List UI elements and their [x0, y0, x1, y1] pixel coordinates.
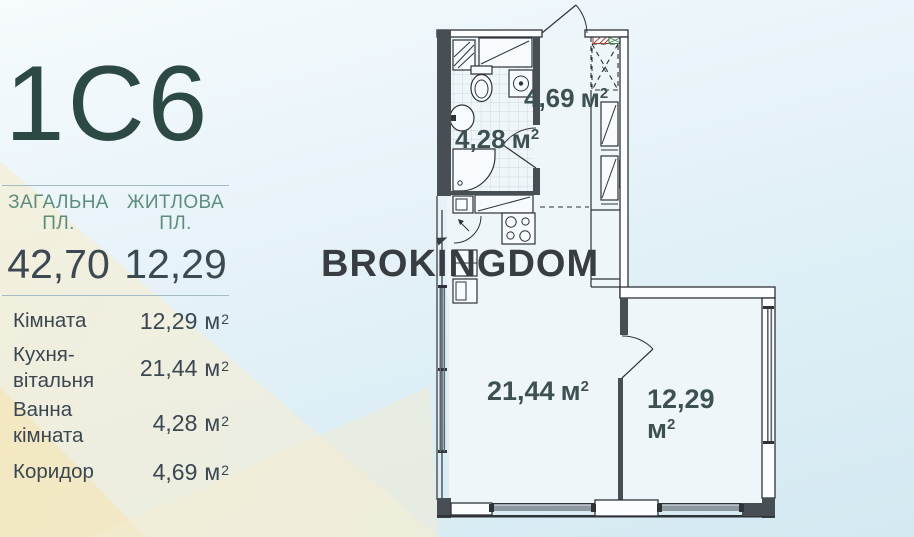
room-area-value: 4,28м2	[153, 410, 229, 437]
living-area-value: 12,29	[117, 241, 234, 288]
kitchen-cabinet-icon	[453, 196, 473, 213]
toilet-icon	[471, 66, 492, 102]
entry-marker-red-icon	[593, 37, 609, 44]
divider-top	[2, 185, 229, 186]
apartment-code-title: 1С6	[5, 50, 210, 157]
info-panel: 1С6 ЗАГАЛЬНА ПЛ. 42,70 ЖИТЛОВА ПЛ. 12,29…	[0, 0, 245, 537]
room-area-label-line1: 12,29	[647, 384, 715, 414]
stove-icon	[502, 213, 535, 244]
living-area-block: ЖИТЛОВА ПЛ. 12,29	[117, 192, 234, 288]
kitchen-counter-icon	[475, 195, 533, 213]
living-area-label: ЖИТЛОВА ПЛ.	[117, 192, 234, 234]
room-area-value: 21,44м2	[140, 355, 229, 382]
bathroom-area-label: 4,28м2	[455, 124, 539, 154]
closet-icon	[601, 102, 618, 150]
total-area-label: ЗАГАЛЬНА ПЛ.	[0, 192, 117, 234]
page: { "unit": {"label": "м", "sup": "2"}, "p…	[0, 0, 914, 537]
room-row-bathroom: Ваннакімната 4,28м2	[13, 395, 229, 451]
room-row-kimnata: Кімната 12,29м2	[13, 301, 229, 341]
room-row-corridor: Коридор 4,69м2	[13, 451, 229, 493]
total-area-block: ЗАГАЛЬНА ПЛ. 42,70	[0, 192, 117, 288]
divider-bottom	[2, 295, 229, 296]
room-list: Кімната 12,29м2 Кухня-вітальня 21,44м2 В…	[13, 301, 229, 493]
room-area-value: 12,29м2	[140, 308, 229, 335]
total-area-value: 42,70	[0, 241, 117, 288]
corridor-area-label: 4,69м2	[524, 83, 608, 113]
area-summary: ЗАГАЛЬНА ПЛ. 42,70 ЖИТЛОВА ПЛ. 12,29	[0, 192, 234, 288]
shelf-icon	[479, 38, 532, 67]
room-row-kitchen-living: Кухня-вітальня 21,44м2	[13, 341, 229, 395]
brand-watermark: BROKINGDOM	[321, 243, 599, 286]
closet-icon	[601, 156, 618, 204]
entry-marker-green-icon	[609, 37, 621, 44]
kitchen-living-area-label: 21,44м2	[487, 376, 589, 406]
entrance-door-icon	[542, 5, 587, 33]
svg-text:x: x	[602, 64, 607, 75]
room-area-value: 4,69м2	[153, 459, 229, 486]
